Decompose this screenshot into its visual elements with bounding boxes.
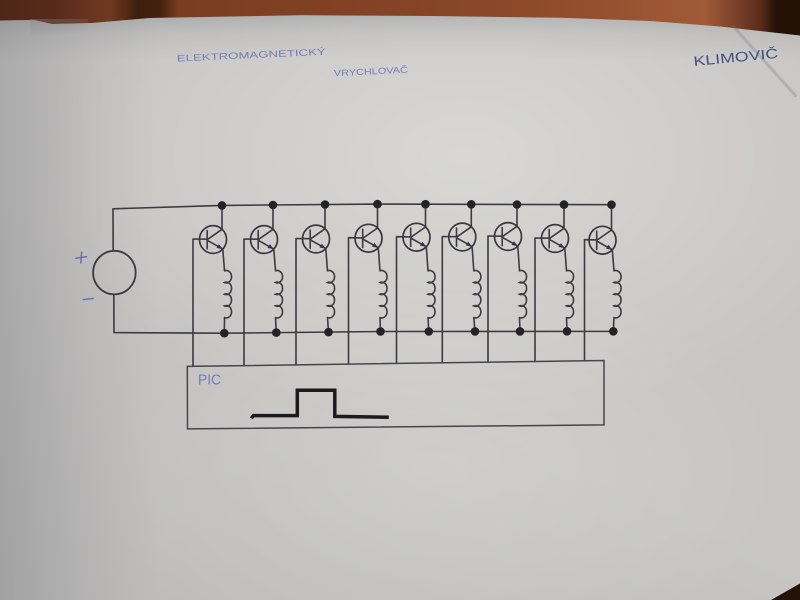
svg-text:KLIMOVIČ: KLIMOVIČ bbox=[693, 46, 779, 69]
svg-text:PIC: PIC bbox=[198, 372, 221, 389]
svg-text:ELEKTROMAGNETICKÝ: ELEKTROMAGNETICKÝ bbox=[177, 47, 326, 64]
svg-text:VRYCHLOVAČ: VRYCHLOVAČ bbox=[334, 65, 409, 79]
